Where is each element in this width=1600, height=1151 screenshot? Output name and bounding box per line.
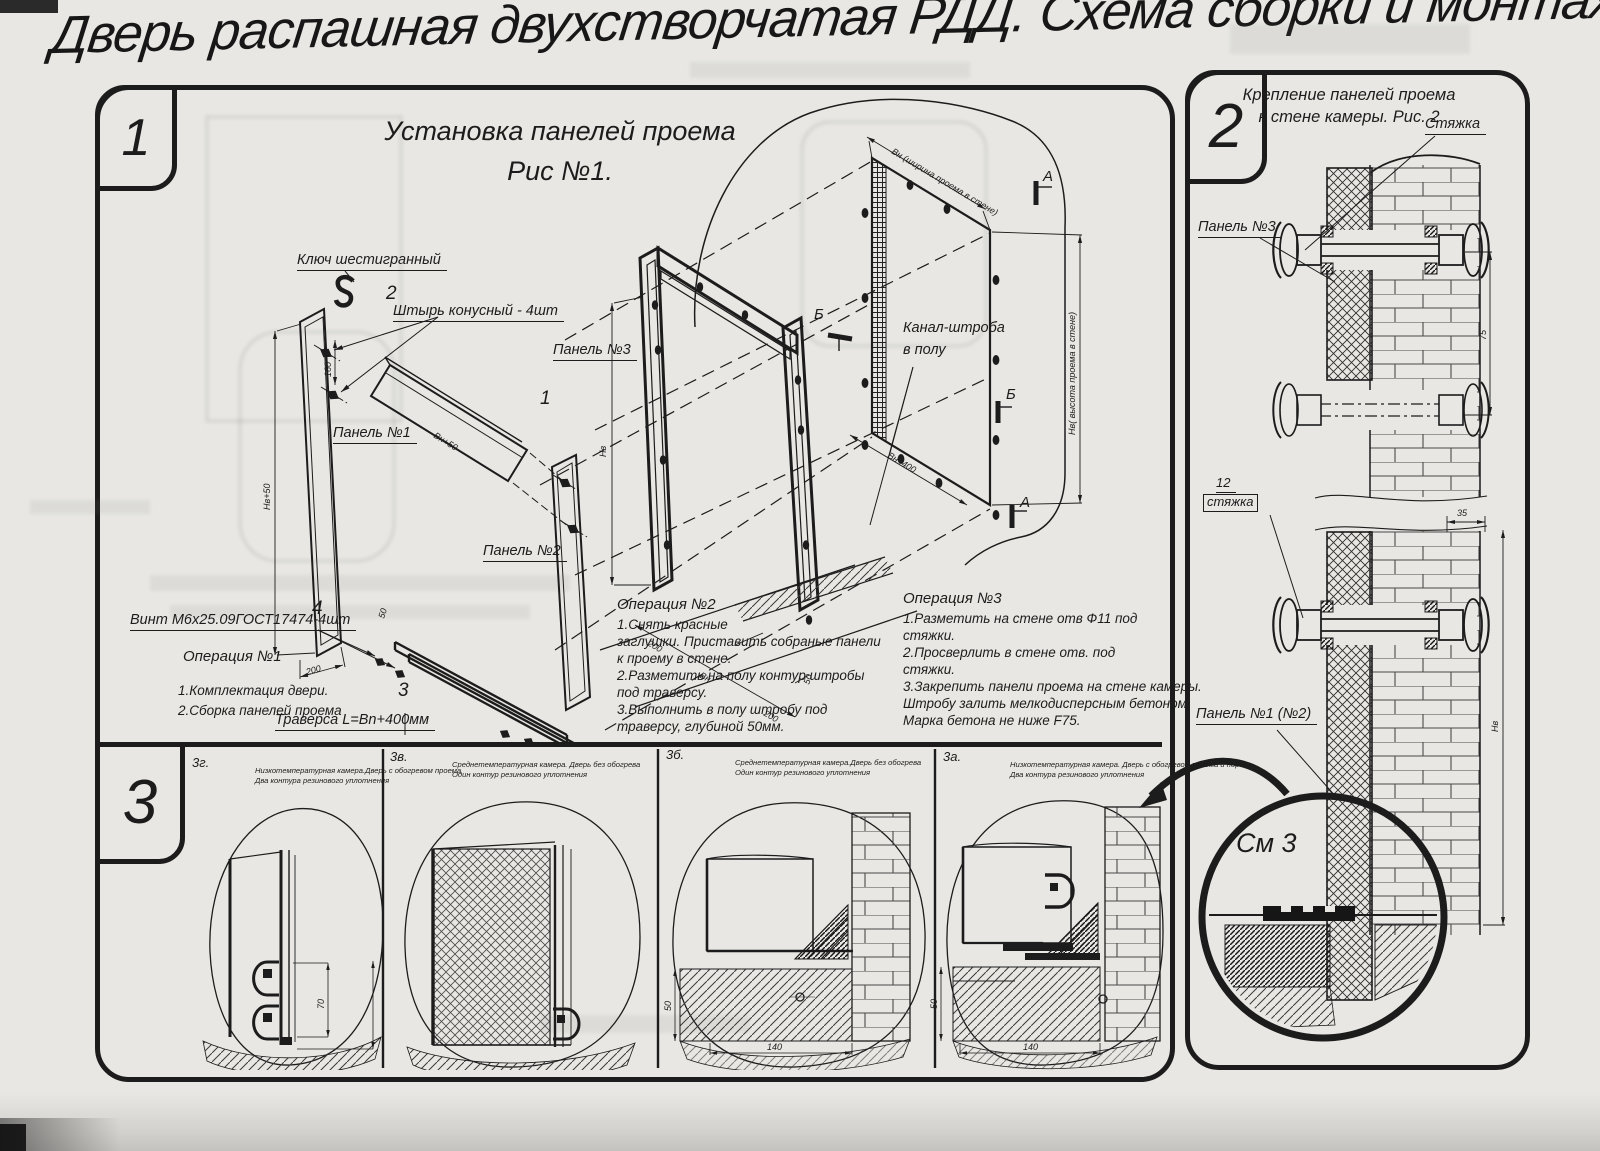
svg-text:Нв: Нв xyxy=(598,446,608,457)
panel1-label: Панель №1 xyxy=(333,425,417,444)
svg-text:140: 140 xyxy=(767,1042,782,1052)
svg-text:50: 50 xyxy=(376,607,389,620)
figure3-line-art: 70 140 50 xyxy=(95,747,1165,1070)
svg-text:50: 50 xyxy=(663,1001,673,1011)
scan-artifact xyxy=(0,0,58,13)
operation1-title: Операция №1 xyxy=(183,648,282,665)
pin-callout-number: 2 xyxy=(386,283,397,305)
detail-3a-caption2: Два контура резинового уплотнения xyxy=(1010,770,1144,780)
operation3-line: 2.Просверлить в стене отв. под xyxy=(903,644,1115,661)
detail-3g-code: 3г. xyxy=(192,756,209,771)
tie-rod-callout-number: 12 xyxy=(1216,476,1236,493)
svg-text:Нв+50: Нв+50 xyxy=(262,484,272,510)
traverse-callout-number: 3 xyxy=(398,680,409,702)
panel3-callout-number: 1 xyxy=(540,388,551,410)
operation3-line: Штробу залить мелкодисперсным бетоном xyxy=(903,695,1187,712)
channel-label-line1: Канал-штроба xyxy=(903,320,1005,337)
svg-text:35: 35 xyxy=(1457,508,1468,518)
detail-3g-caption2: Два контура резинового уплотнения xyxy=(255,776,389,786)
operation3-line: 3.Закрепить панели проема на стене камер… xyxy=(903,678,1202,695)
operation3-line: стяжки. xyxy=(903,661,955,678)
scan-shadow xyxy=(0,1093,1600,1151)
svg-text:Вн+50: Вн+50 xyxy=(432,430,460,452)
operation3-line: Марка бетона не ниже F75. xyxy=(903,712,1080,729)
hex-key-label: Ключ шестигранный xyxy=(297,252,447,271)
fig2-panel3-label: Панель №3 xyxy=(1198,219,1282,238)
operation3-title: Операция №3 xyxy=(903,590,1002,607)
ghost-artifact xyxy=(1230,24,1470,54)
detail-3g-caption1: Низкотемпературная камера.Дверь с обогре… xyxy=(255,766,461,776)
fig2-heading-line1: Крепление панелей проема xyxy=(1240,86,1458,105)
section-marker-a: А xyxy=(1020,494,1030,511)
detail-3b-caption2: Один контур резинового уплотнения xyxy=(735,768,870,778)
pin-label: Штырь конусный - 4шт xyxy=(393,303,564,322)
operation2-title: Операция №2 xyxy=(617,596,716,613)
tie-rod-boxed-label: стяжка xyxy=(1203,494,1258,512)
operation2-line: к проему в стене. xyxy=(617,650,732,667)
svg-text:140: 140 xyxy=(1023,1042,1038,1052)
detail-3v-code: 3в. xyxy=(390,750,408,765)
operation2-line: 2.Разметить на полу контур штробы xyxy=(617,667,864,684)
section-marker-b: Б xyxy=(1006,386,1016,403)
operation3-line: 1.Разметить на стене отв Ф11 под xyxy=(903,610,1137,627)
see3-arrow xyxy=(1115,742,1295,827)
svg-text:Нв( высота проема в стене): Нв( высота проема в стене) xyxy=(1067,312,1077,435)
svg-text:Вн+400: Вн+400 xyxy=(886,450,918,475)
svg-text:160: 160 xyxy=(323,362,333,377)
fig2-panel12-label: Панель №1 (№2) xyxy=(1196,706,1317,725)
operation2-line: под траверсу. xyxy=(617,684,707,701)
detail-3v-caption2: Один контур резинового уплотнения xyxy=(452,770,587,780)
operation2-line: 3.Выполнить в полу штробу под xyxy=(617,701,827,718)
fig1-heading-line2: Рис №1. xyxy=(345,156,775,187)
detail-3v-caption1: Среднетемпературная камера. Дверь без об… xyxy=(452,760,640,770)
scan-shadow xyxy=(0,1118,120,1151)
svg-text:200: 200 xyxy=(304,663,322,677)
detail-3a-code: 3а. xyxy=(943,750,961,765)
panel2-label: Панель №2 xyxy=(483,543,567,562)
svg-text:Нв: Нв xyxy=(1490,721,1500,732)
section-marker-a: А xyxy=(1043,168,1053,185)
detail-3b-code: 3б. xyxy=(666,748,684,763)
panel3-label: Панель №3 xyxy=(553,342,637,361)
section-marker-b: Б xyxy=(814,306,824,323)
operation2-line: 1.Снять красные xyxy=(617,616,728,633)
tie-rod-label: Стяжка xyxy=(1425,116,1486,135)
svg-text:70: 70 xyxy=(316,999,326,1009)
operation1-line: 2.Сборка панелей проема xyxy=(178,702,342,719)
svg-text:50: 50 xyxy=(929,999,939,1009)
detail-3b-caption1: Среднетемпературная камера.Дверь без обо… xyxy=(735,758,921,768)
see-detail3-label: См 3 xyxy=(1236,828,1297,859)
channel-label-line2: в полу xyxy=(903,342,946,359)
svg-text:75: 75 xyxy=(1478,329,1488,340)
operation2-line: заглушки. Приставить собраные панели xyxy=(617,633,881,650)
screw-label: Винт М6х25.09ГОСТ17474-4шт xyxy=(130,612,356,631)
ghost-artifact xyxy=(690,62,970,78)
operation1-line: 1.Комплектация двери. xyxy=(178,682,328,699)
detail-3a-caption1: Низкотемпературная камера. Дверь с обогр… xyxy=(1010,760,1251,770)
fig1-heading-line1: Установка панелей проема xyxy=(345,116,775,147)
operation3-line: стяжки. xyxy=(903,627,955,644)
operation2-line: траверсу, глубиной 50мм. xyxy=(617,718,784,735)
